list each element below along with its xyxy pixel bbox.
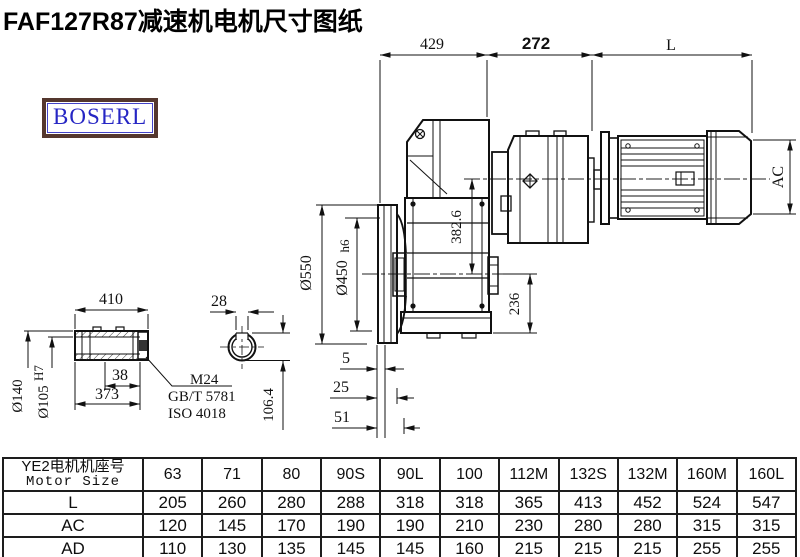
col-header-cell: 132M bbox=[618, 458, 677, 491]
technical-drawing: 429 272 L bbox=[0, 0, 800, 457]
dim-d105-tol: H7 bbox=[31, 365, 46, 381]
table-cell: 190 bbox=[380, 514, 439, 537]
col-header-cell: 112M bbox=[499, 458, 558, 491]
table-cell: 315 bbox=[737, 514, 796, 537]
table-cell: 130 bbox=[202, 537, 261, 557]
table-cell: 215 bbox=[559, 537, 618, 557]
table-cell: 452 bbox=[618, 491, 677, 514]
dim-272: 272 bbox=[522, 34, 550, 53]
dim-5: 5 bbox=[342, 350, 350, 367]
col-header-cell: 160L bbox=[737, 458, 796, 491]
dim-236: 236 bbox=[507, 292, 523, 315]
note-gbt: GB/T 5781 bbox=[168, 389, 236, 405]
table-cell: 210 bbox=[440, 514, 499, 537]
row-label: L bbox=[3, 491, 143, 514]
table-cell: 315 bbox=[677, 514, 736, 537]
table-cell: 145 bbox=[202, 514, 261, 537]
table-cell: 160 bbox=[440, 537, 499, 557]
table-cell: 318 bbox=[440, 491, 499, 514]
top-dimension-chain bbox=[380, 55, 752, 203]
gearbox-housing bbox=[393, 120, 498, 338]
shaft-section-view bbox=[220, 326, 264, 369]
dim-51: 51 bbox=[334, 409, 350, 426]
table-cell: 280 bbox=[559, 514, 618, 537]
motor-size-header: YE2电机机座号Motor Size bbox=[3, 458, 143, 491]
table-cell: 547 bbox=[737, 491, 796, 514]
motor-size-table: YE2电机机座号Motor Size63718090S90L100112M132… bbox=[2, 457, 797, 557]
hollow-shaft-detail bbox=[75, 327, 148, 360]
table-cell: 260 bbox=[202, 491, 261, 514]
table-cell: 288 bbox=[321, 491, 380, 514]
dim-d140: Ø140 bbox=[10, 379, 26, 412]
motor-size-header-en: Motor Size bbox=[4, 475, 142, 490]
table-cell: 215 bbox=[499, 537, 558, 557]
col-header-cell: 80 bbox=[262, 458, 321, 491]
table-cell: 524 bbox=[677, 491, 736, 514]
table-cell: 365 bbox=[499, 491, 558, 514]
dim-d550: Ø550 bbox=[298, 255, 315, 291]
drawing-page: FAF127R87减速机电机尺寸图纸 BOSERL bbox=[0, 0, 800, 557]
table-cell: 145 bbox=[380, 537, 439, 557]
table-cell: 255 bbox=[737, 537, 796, 557]
dim-25: 25 bbox=[333, 379, 349, 396]
dim-382: 382.6 bbox=[449, 210, 465, 244]
table-cell: 280 bbox=[618, 514, 677, 537]
table-cell: 170 bbox=[262, 514, 321, 537]
centerlines bbox=[362, 179, 770, 274]
table-cell: 110 bbox=[143, 537, 202, 557]
col-header-cell: 100 bbox=[440, 458, 499, 491]
table-cell: 190 bbox=[321, 514, 380, 537]
table-row: AD110130135145145160215215215255255 bbox=[3, 537, 796, 557]
motor-size-header-cn: YE2电机机座号 bbox=[4, 459, 142, 475]
table-row: L205260280288318318365413452524547 bbox=[3, 491, 796, 514]
dim-38: 38 bbox=[112, 367, 128, 384]
table-row: AC120145170190190210230280280315315 bbox=[3, 514, 796, 537]
dim-d450-tol: h6 bbox=[337, 239, 352, 253]
table-cell: 215 bbox=[618, 537, 677, 557]
note-iso: ISO 4018 bbox=[168, 406, 226, 422]
table-cell: 135 bbox=[262, 537, 321, 557]
row-label: AC bbox=[3, 514, 143, 537]
note-m24: M24 bbox=[190, 372, 219, 388]
col-header-cell: 160M bbox=[677, 458, 736, 491]
table-cell: 205 bbox=[143, 491, 202, 514]
dim-373: 373 bbox=[95, 386, 119, 403]
dim-d450: Ø450 bbox=[334, 260, 351, 296]
row-label: AD bbox=[3, 537, 143, 557]
col-header-cell: 90L bbox=[380, 458, 439, 491]
col-header-cell: 132S bbox=[559, 458, 618, 491]
dim-L: L bbox=[666, 37, 676, 54]
dim-28: 28 bbox=[211, 293, 227, 310]
dim-410: 410 bbox=[99, 291, 123, 308]
col-header-cell: 63 bbox=[143, 458, 202, 491]
table-cell: 413 bbox=[559, 491, 618, 514]
input-stage-housing bbox=[492, 131, 601, 243]
dim-429: 429 bbox=[420, 36, 444, 53]
table-cell: 255 bbox=[677, 537, 736, 557]
table-cell: 230 bbox=[499, 514, 558, 537]
table-cell: 280 bbox=[262, 491, 321, 514]
dim-d105: Ø105 bbox=[36, 385, 52, 418]
table-cell: 120 bbox=[143, 514, 202, 537]
col-header-cell: 90S bbox=[321, 458, 380, 491]
table-cell: 318 bbox=[380, 491, 439, 514]
table-header-row: YE2电机机座号Motor Size63718090S90L100112M132… bbox=[3, 458, 796, 491]
dim-ac: AC bbox=[770, 166, 787, 188]
motor bbox=[601, 131, 751, 224]
dim-106: 106.4 bbox=[261, 388, 277, 422]
table-cell: 145 bbox=[321, 537, 380, 557]
col-header-cell: 71 bbox=[202, 458, 261, 491]
